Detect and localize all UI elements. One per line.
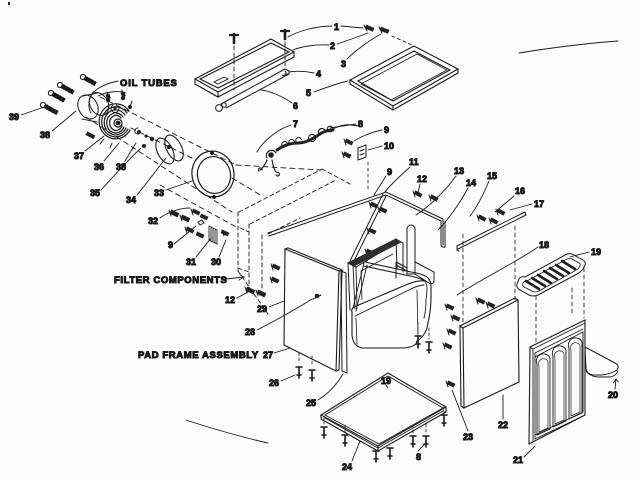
svg-text:9: 9 [387, 167, 392, 177]
svg-text:6: 6 [293, 101, 298, 111]
svg-text:35: 35 [90, 188, 100, 198]
svg-text:22: 22 [498, 420, 508, 430]
svg-text:38: 38 [40, 130, 50, 140]
svg-text:19: 19 [381, 376, 391, 386]
svg-text:8: 8 [416, 452, 421, 462]
svg-text:11: 11 [409, 157, 419, 167]
svg-text:18: 18 [539, 240, 549, 250]
svg-text:34: 34 [126, 195, 136, 205]
svg-text:9: 9 [384, 125, 389, 135]
svg-text:23: 23 [463, 432, 473, 442]
svg-text:PAD FRAME ASSEMBLY: PAD FRAME ASSEMBLY [138, 350, 259, 361]
svg-text:27: 27 [263, 350, 273, 360]
svg-text:FILTER COMPONENTS: FILTER COMPONENTS [114, 275, 227, 286]
svg-text:20: 20 [608, 390, 618, 400]
svg-text:21: 21 [513, 455, 523, 465]
svg-text:1: 1 [334, 22, 339, 32]
svg-text:24: 24 [342, 462, 352, 472]
svg-text:32: 32 [148, 216, 158, 226]
svg-text:5: 5 [306, 88, 311, 98]
svg-text:12: 12 [225, 295, 235, 305]
svg-text:OIL TUBES: OIL TUBES [120, 78, 178, 89]
svg-text:28: 28 [245, 327, 255, 337]
svg-text:36: 36 [94, 162, 104, 172]
svg-text:2: 2 [330, 41, 335, 51]
svg-text:3: 3 [341, 59, 346, 69]
svg-text:37: 37 [74, 151, 84, 161]
svg-text:25: 25 [306, 398, 316, 408]
svg-text:38: 38 [116, 162, 126, 172]
svg-text:4: 4 [316, 69, 321, 79]
svg-text:9: 9 [168, 240, 173, 250]
svg-text:14: 14 [466, 178, 476, 188]
svg-text:30: 30 [211, 257, 221, 267]
svg-text:15: 15 [487, 171, 497, 181]
svg-text:10: 10 [384, 141, 394, 151]
svg-text:31: 31 [186, 257, 196, 267]
svg-text:33: 33 [154, 188, 164, 198]
svg-text:39: 39 [9, 112, 19, 122]
svg-text:19: 19 [591, 247, 601, 257]
svg-text:12: 12 [417, 174, 427, 184]
svg-text:13: 13 [454, 166, 464, 176]
svg-text:29: 29 [257, 304, 267, 314]
svg-text:8: 8 [358, 119, 363, 129]
svg-text:16: 16 [515, 186, 525, 196]
svg-text:17: 17 [534, 199, 544, 209]
svg-text:26: 26 [269, 378, 279, 388]
svg-text:7: 7 [293, 119, 298, 129]
